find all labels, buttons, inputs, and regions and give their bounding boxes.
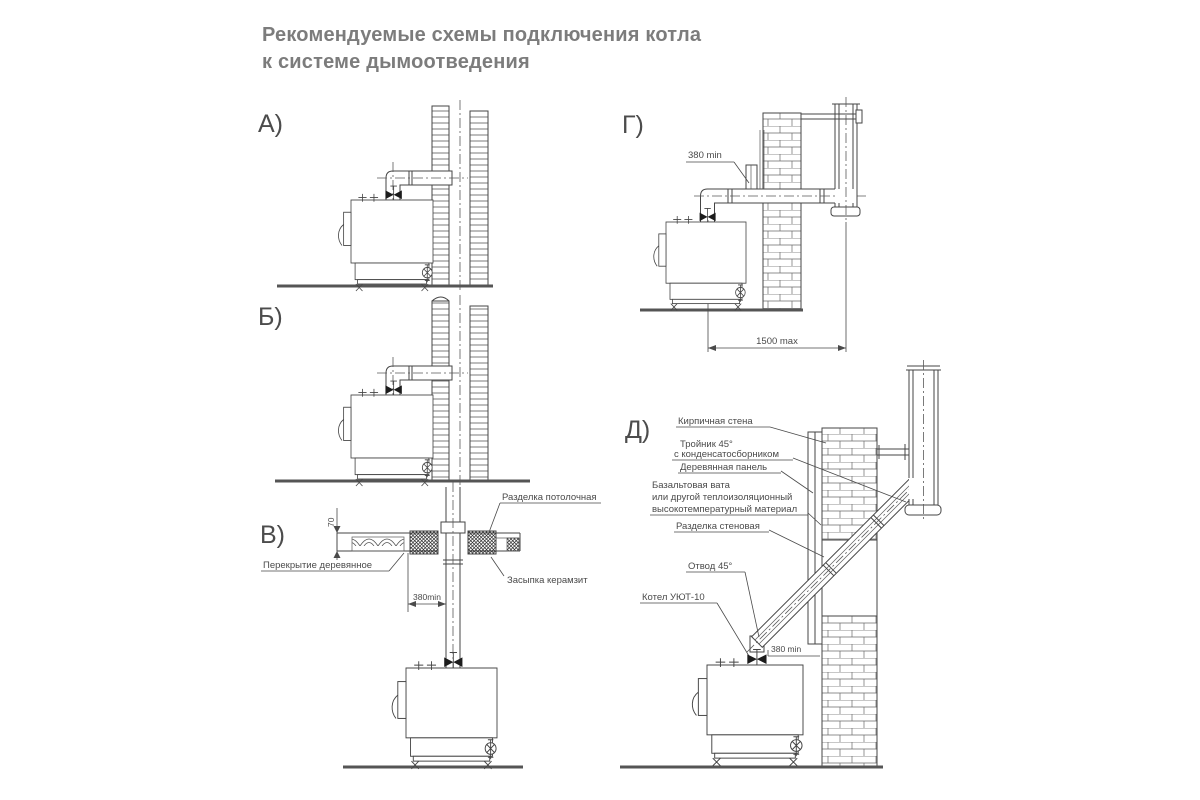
boiler-a [338, 186, 433, 291]
wood-panel-label: Деревянная панель [680, 462, 767, 473]
diagram-a: А) [258, 100, 493, 292]
dim-380min-g-text: 380 min [688, 150, 722, 161]
diagram-g-letter: Г) [622, 111, 644, 139]
diagram-b-letter: Б) [258, 303, 283, 331]
diagram-b-chimney [432, 295, 488, 487]
diagram-a-letter: А) [258, 110, 283, 138]
dim-1500max-text: 1500 max [756, 336, 798, 347]
boiler-model-label: Котел УЮТ-10 [642, 592, 705, 603]
brick-wall [763, 113, 801, 310]
insulation-layer [815, 432, 822, 644]
diagram-b: Б) [258, 295, 530, 487]
wall-cut-label: Разделка стеновая [676, 521, 760, 532]
wood-floor-label: Перекрытие деревянное [263, 560, 372, 571]
dimension-380min-d: 380 min [768, 644, 820, 656]
diagram-v-flue-pipe [441, 482, 465, 672]
diagram-g: Г) 380 min [622, 97, 866, 352]
dimension-70: 70 [326, 508, 341, 560]
callout-insulation: Базальтовая вата или другой теплоизоляци… [650, 480, 821, 525]
insulation-label-line2: или другой теплоизоляционный [652, 492, 792, 503]
callout-380min-g: 380 min [686, 150, 749, 183]
diagram-d-letter: Д) [625, 416, 650, 444]
callout-boiler-model: Котел УЮТ-10 [640, 592, 752, 661]
boiler-g [654, 208, 746, 310]
wood-panel [808, 432, 815, 644]
dim-70-text: 70 [326, 517, 336, 527]
diagram-v-ceiling [337, 531, 520, 554]
diagram-b-flue-pipe [377, 357, 468, 399]
backfill-label: Засыпка керамзит [507, 575, 588, 586]
diagram-a-flue-pipe [377, 162, 468, 204]
boiler-v [392, 652, 497, 768]
insulation-label-line3: высокотемпературный материал [652, 504, 797, 515]
diagram-v: В) 70 [260, 482, 601, 769]
diagram-a-chimney [432, 100, 488, 292]
callout-backfill: Засыпка керамзит [491, 557, 588, 586]
elbow-label: Отвод 45° [688, 561, 733, 572]
diagram-v-letter: В) [260, 521, 285, 549]
brick-wall-label: Кирпичная стена [678, 416, 753, 427]
schematic-canvas: А) Б) [0, 0, 1200, 800]
dimension-380min: 380min [408, 553, 446, 612]
diagram-d: Д) Кирпичная стена [620, 360, 941, 767]
page: Рекомендуемые схемы подключения котла к … [0, 0, 1200, 800]
callout-wood-floor: Перекрытие деревянное [261, 553, 404, 571]
boiler-b [338, 381, 433, 486]
boiler-d [692, 649, 803, 765]
callout-wall-cut: Разделка стеновая [674, 521, 824, 557]
tee-label-line2: с конденсатосборником [674, 449, 779, 460]
callout-ceiling-cut: Разделка потолочная [488, 492, 601, 535]
ceiling-cut-label: Разделка потолочная [502, 492, 597, 503]
insulation-label-line1: Базальтовая вата [652, 480, 731, 491]
diagram-d-chimney [877, 360, 941, 522]
dim-380min-d-text: 380 min [771, 644, 802, 654]
dim-380min-text: 380min [413, 592, 441, 602]
